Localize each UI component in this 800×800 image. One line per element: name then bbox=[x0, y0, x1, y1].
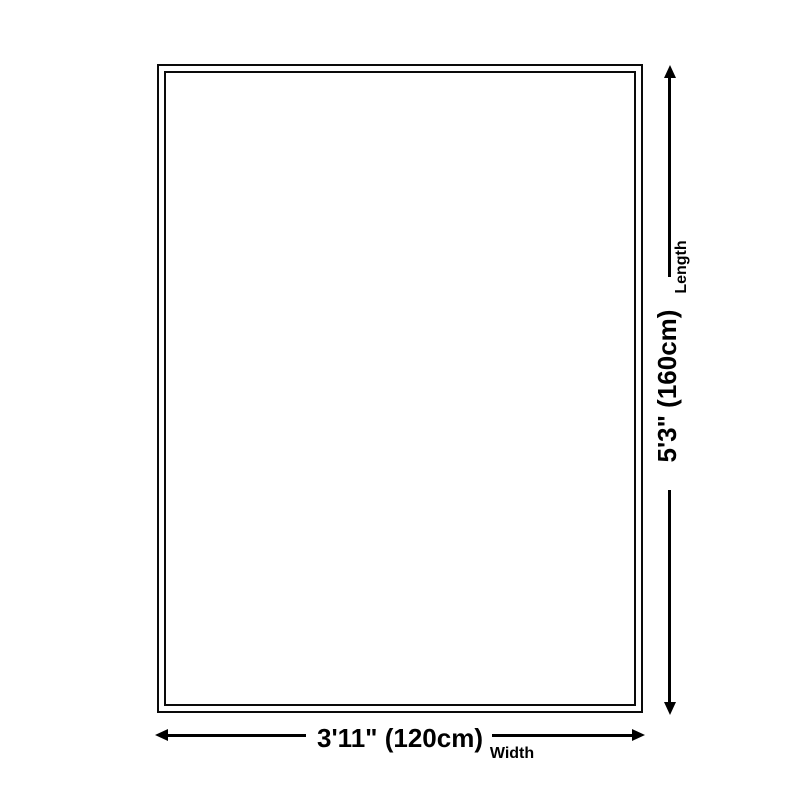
length-arrow-line-top bbox=[668, 76, 671, 277]
width-dimension-value: 3'11" (120cm) bbox=[317, 725, 483, 751]
arrow-right-icon bbox=[632, 729, 645, 741]
dimension-diagram: Length 5'3" (160cm) 3'11" (120cm) Width bbox=[0, 0, 800, 800]
length-dimension-label: Length bbox=[674, 240, 690, 293]
width-arrow-line-right bbox=[492, 734, 633, 737]
rug-outline-inner-border bbox=[164, 71, 636, 706]
arrow-down-icon bbox=[664, 702, 676, 715]
rug-outline-outer-border bbox=[157, 64, 643, 713]
length-dimension-value: 5'3" (160cm) bbox=[654, 310, 680, 463]
length-arrow-line-bottom bbox=[668, 490, 671, 703]
width-arrow-line-left bbox=[165, 734, 306, 737]
width-dimension-label: Width bbox=[490, 746, 534, 762]
